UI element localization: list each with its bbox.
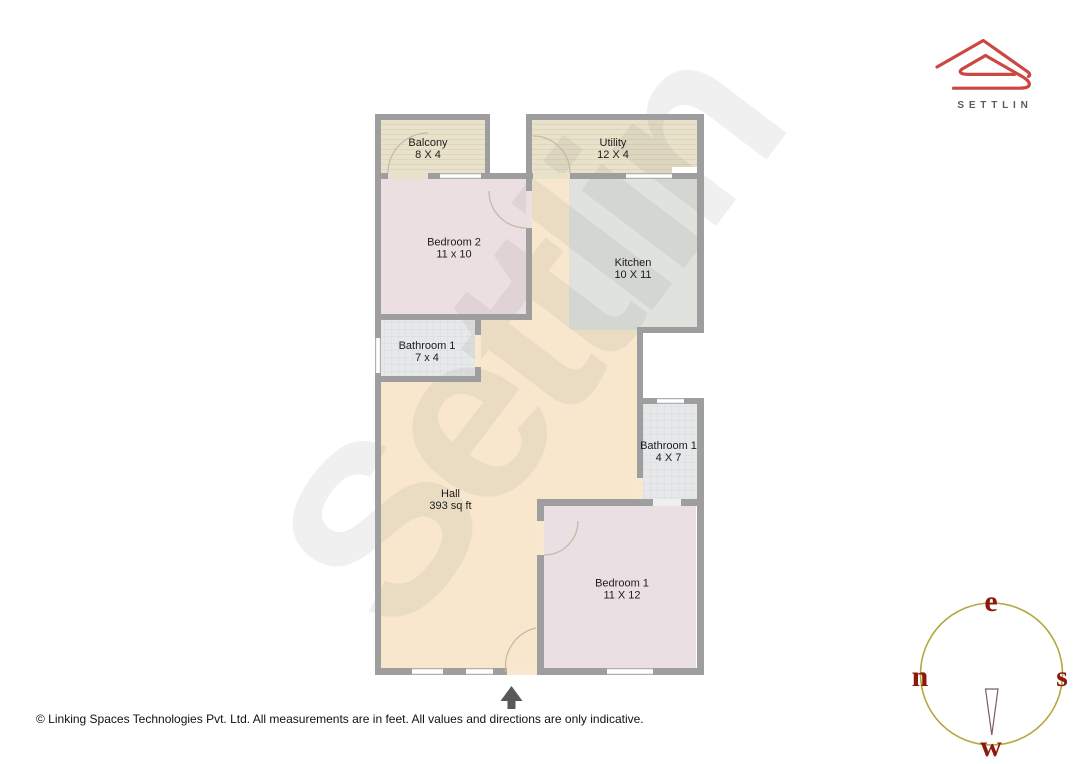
svg-text:s: s xyxy=(1056,660,1068,693)
svg-text:10 X 11: 10 X 11 xyxy=(614,269,651,281)
svg-text:Hall: Hall xyxy=(441,488,460,500)
svg-text:Bedroom 1: Bedroom 1 xyxy=(595,578,649,590)
svg-text:11 X 12: 11 X 12 xyxy=(603,590,640,602)
svg-text:Bathroom 1: Bathroom 1 xyxy=(399,340,456,352)
svg-text:© Linking Spaces Technologies: © Linking Spaces Technologies Pvt. Ltd. … xyxy=(36,712,644,726)
svg-text:Bedroom 2: Bedroom 2 xyxy=(427,237,481,249)
svg-text:Kitchen: Kitchen xyxy=(615,257,652,269)
svg-text:12 X 4: 12 X 4 xyxy=(597,149,629,161)
svg-text:Balcony: Balcony xyxy=(408,137,448,149)
svg-text:8 X 4: 8 X 4 xyxy=(415,149,441,161)
svg-text:11 x 10: 11 x 10 xyxy=(436,249,471,261)
svg-text:SETTLIN: SETTLIN xyxy=(957,100,1032,111)
svg-text:Bathroom 1: Bathroom 1 xyxy=(640,440,697,452)
svg-text:w: w xyxy=(980,730,1002,763)
svg-text:n: n xyxy=(912,660,929,693)
svg-text:393 sq ft: 393 sq ft xyxy=(429,500,471,512)
svg-text:7 x 4: 7 x 4 xyxy=(415,352,439,364)
svg-text:4 X 7: 4 X 7 xyxy=(656,452,682,464)
svg-text:e: e xyxy=(984,585,997,618)
svg-text:Utility: Utility xyxy=(600,137,627,149)
